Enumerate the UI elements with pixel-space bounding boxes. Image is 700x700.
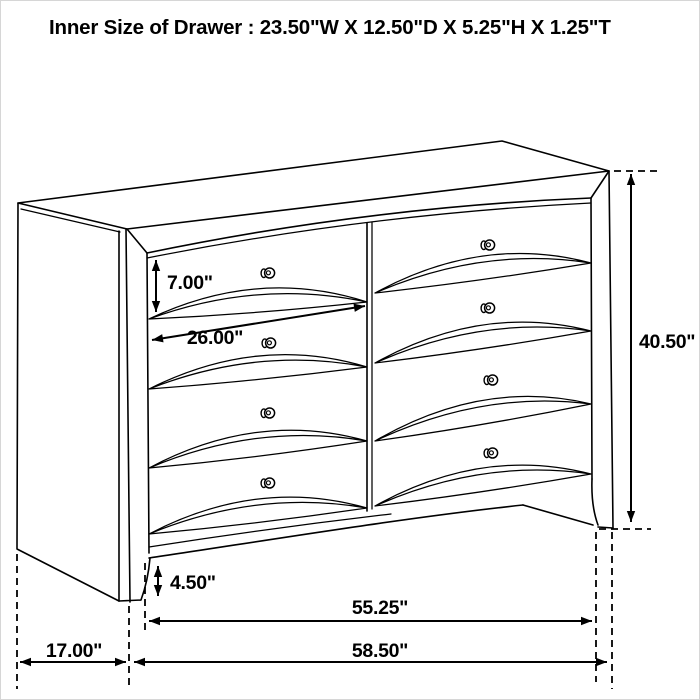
dimension-side-depth: 17.00" <box>20 640 126 662</box>
drawer-dividers-left-column <box>149 288 367 534</box>
dimension-overall-height: 40.50" <box>631 174 695 522</box>
drawer-knob <box>261 478 275 488</box>
drawer-knob <box>261 408 275 418</box>
dimension-label-side-depth: 17.00" <box>46 640 102 662</box>
dresser-front-frame <box>127 171 613 553</box>
dimension-label-base-height: 4.50" <box>170 572 216 594</box>
dimension-front-width: 55.25" <box>149 597 592 621</box>
dimension-label-overall-height: 40.50" <box>639 331 695 353</box>
dimension-label-front-width: 55.25" <box>352 597 408 619</box>
drawer-knob <box>262 338 276 348</box>
dimension-label-drawer-face-width: 26.00" <box>187 327 243 349</box>
projection-dashed-lines <box>17 171 658 689</box>
dimension-overall-width: 58.50" <box>134 640 607 662</box>
dimension-diagram-canvas: Inner Size of Drawer : 23.50"W X 12.50"D… <box>0 0 700 700</box>
drawer-knob <box>481 240 495 250</box>
drawer-knob <box>261 268 275 278</box>
dresser-side-panel <box>17 203 130 602</box>
dimension-label-overall-width: 58.50" <box>352 640 408 662</box>
dimension-base-height: 4.50" <box>158 566 216 596</box>
drawer-knob <box>484 448 498 458</box>
drawer-knob <box>484 375 498 385</box>
drawer-knob <box>481 303 495 313</box>
drawer-dividers-right-column <box>375 253 591 506</box>
dimension-label-drawer-face-height: 7.00" <box>167 272 213 294</box>
diagram-title: Inner Size of Drawer : 23.50"W X 12.50"D… <box>49 16 611 39</box>
dresser-line-drawing: Inner Size of Drawer : 23.50"W X 12.50"D… <box>1 1 700 700</box>
dresser-top-surface <box>18 141 609 232</box>
